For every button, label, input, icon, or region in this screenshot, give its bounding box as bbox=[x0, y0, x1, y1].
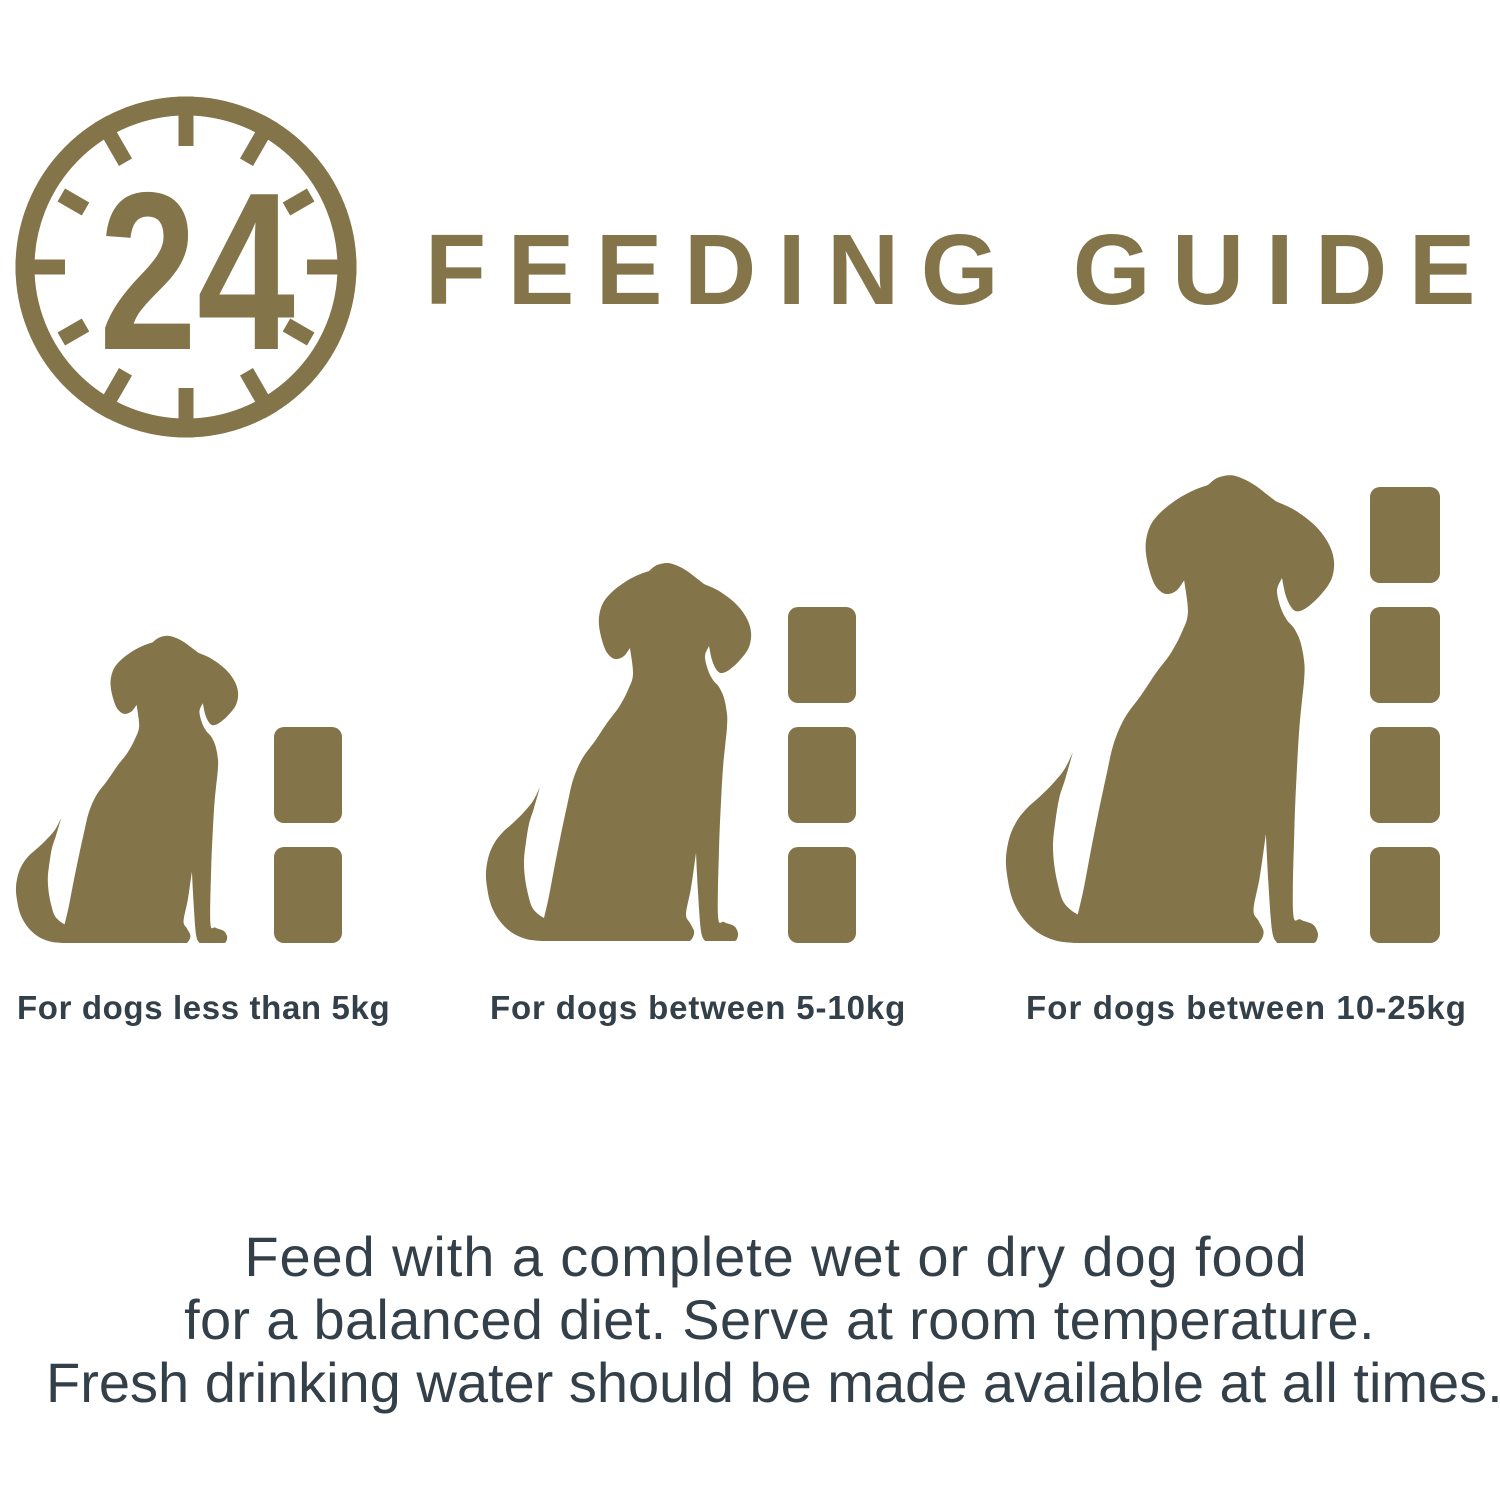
svg-text:24: 24 bbox=[99, 145, 295, 397]
